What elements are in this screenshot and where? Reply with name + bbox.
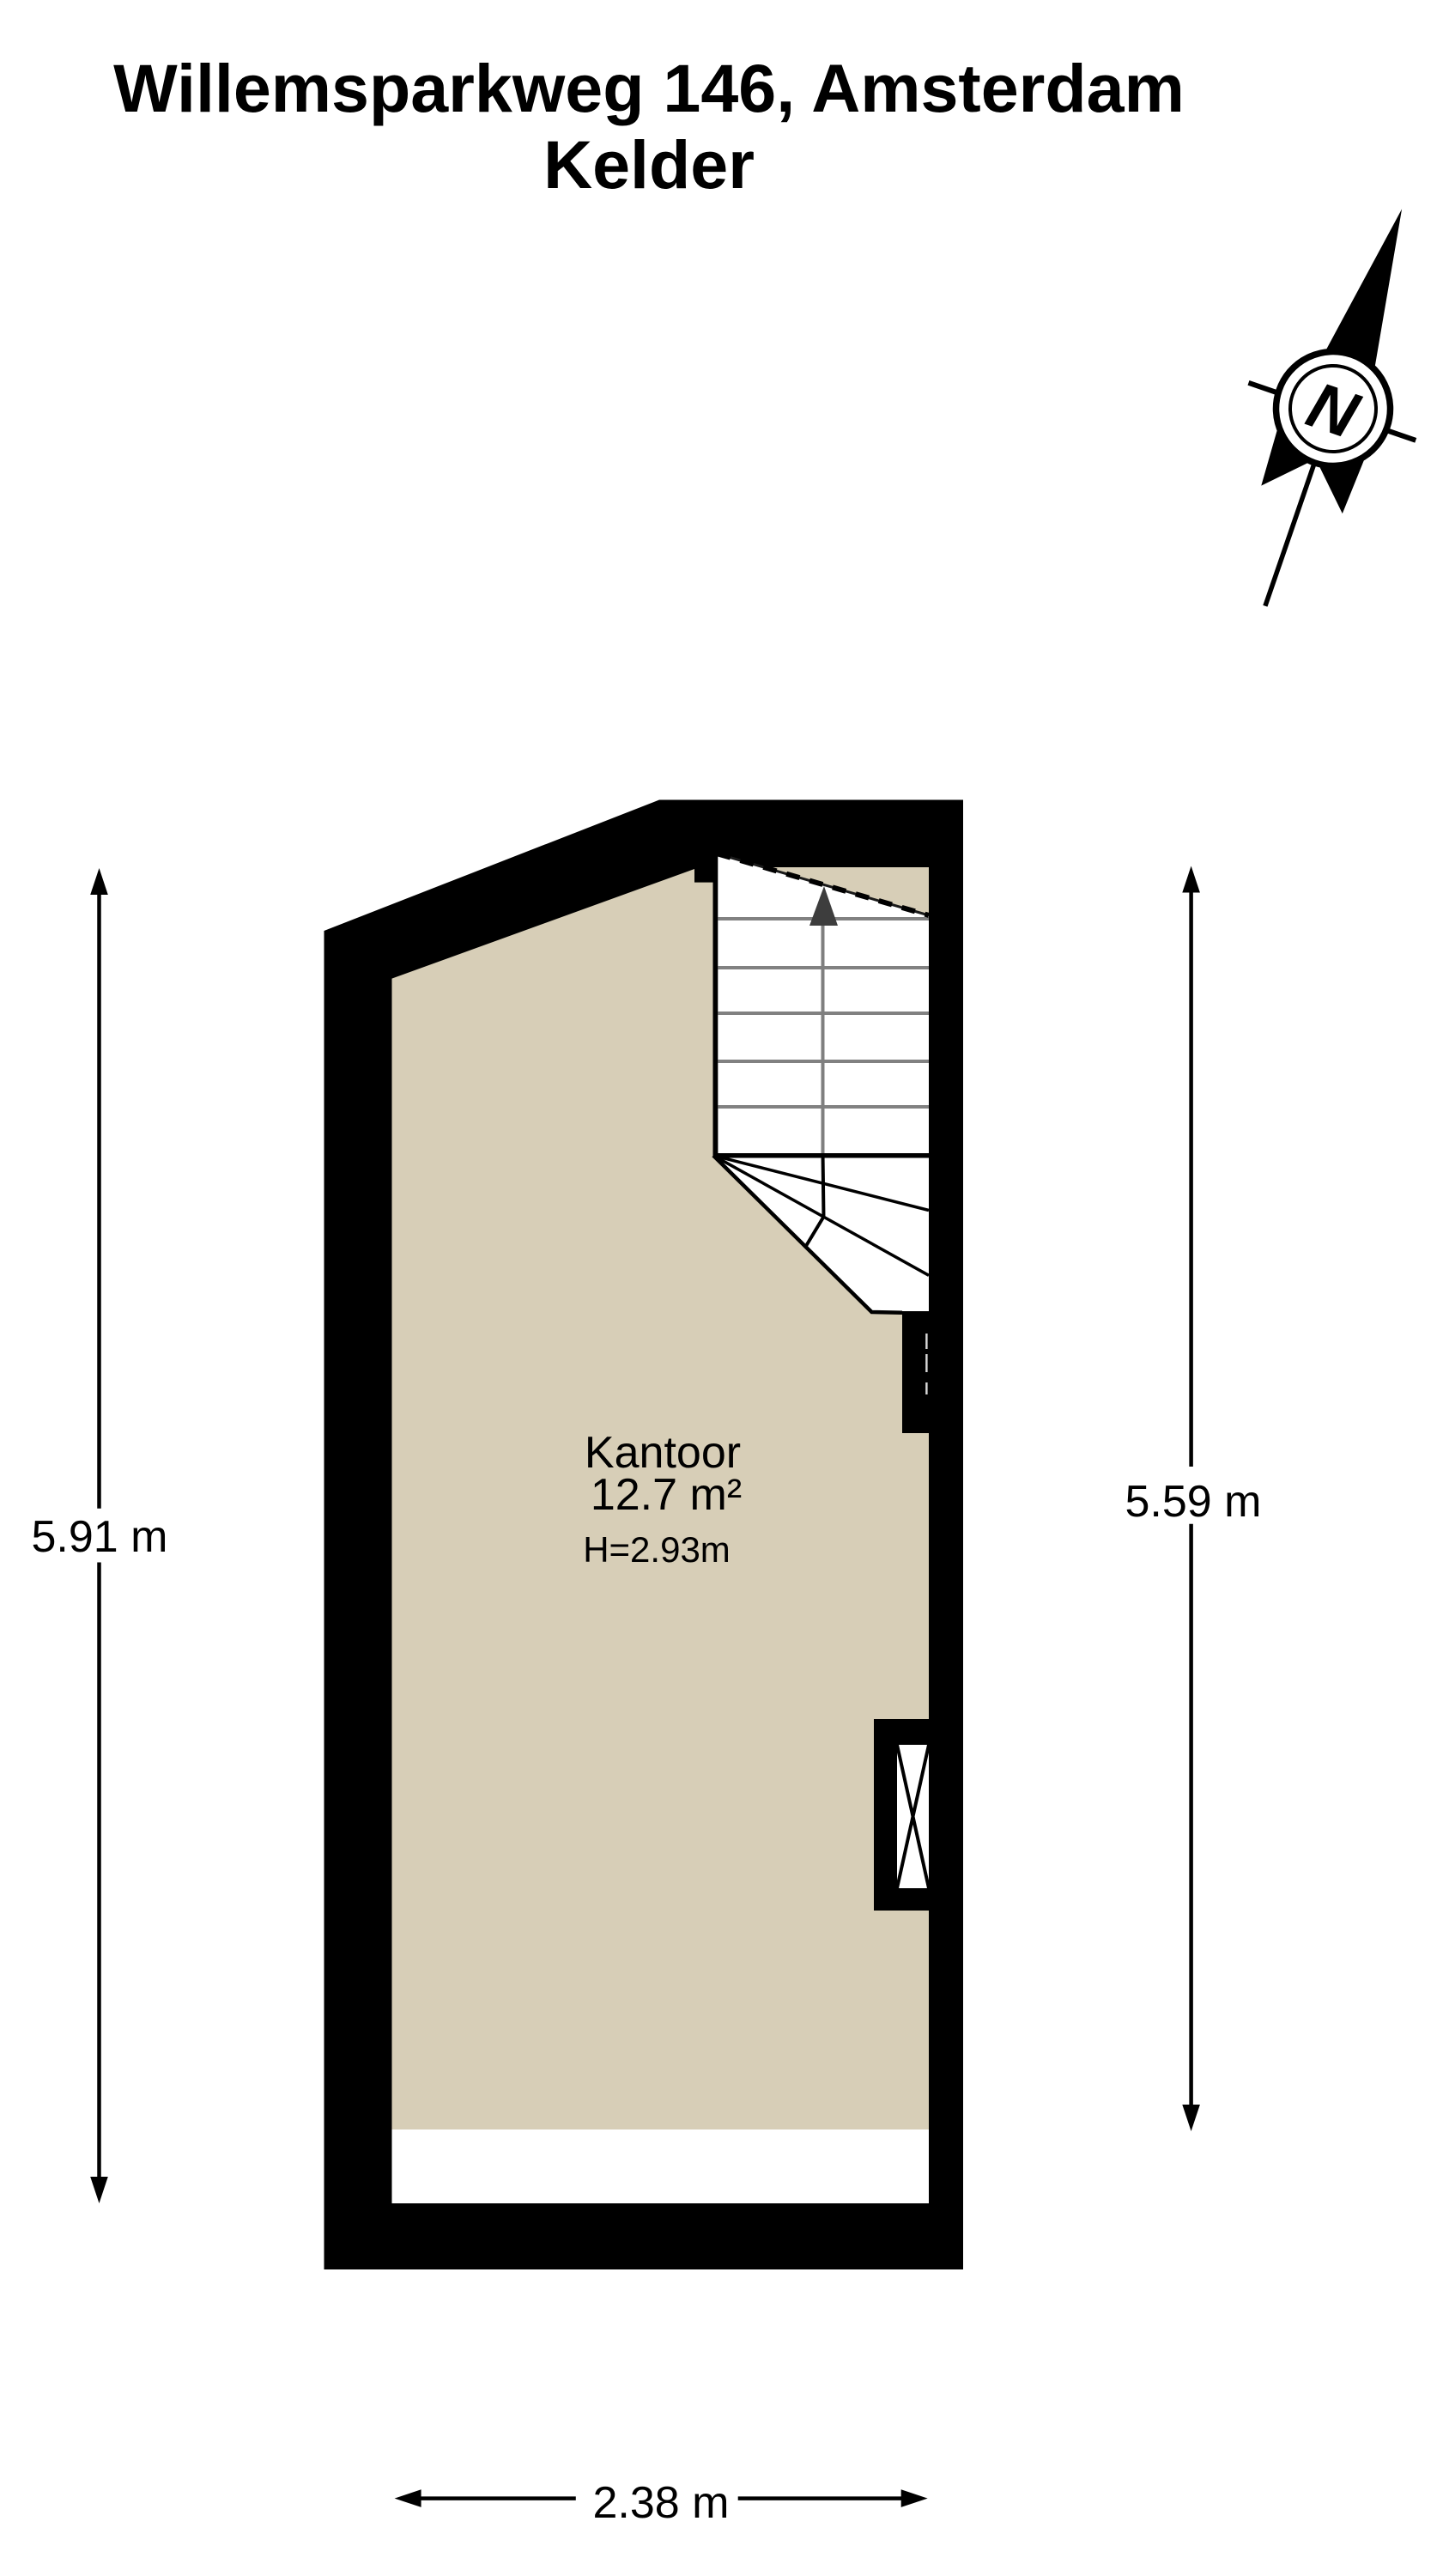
svg-text:12.7 m²: 12.7 m²	[591, 1470, 742, 1520]
svg-text:H=2.93m: H=2.93m	[583, 1529, 731, 1570]
svg-text:Kelder: Kelder	[543, 126, 755, 203]
svg-text:5.59 m: 5.59 m	[1125, 1477, 1262, 1527]
svg-text:5.91 m: 5.91 m	[32, 1512, 168, 1562]
svg-text:2.38 m: 2.38 m	[593, 2478, 730, 2528]
svg-text:Willemsparkweg 146, Amsterdam: Willemsparkweg 146, Amsterdam	[113, 50, 1185, 126]
